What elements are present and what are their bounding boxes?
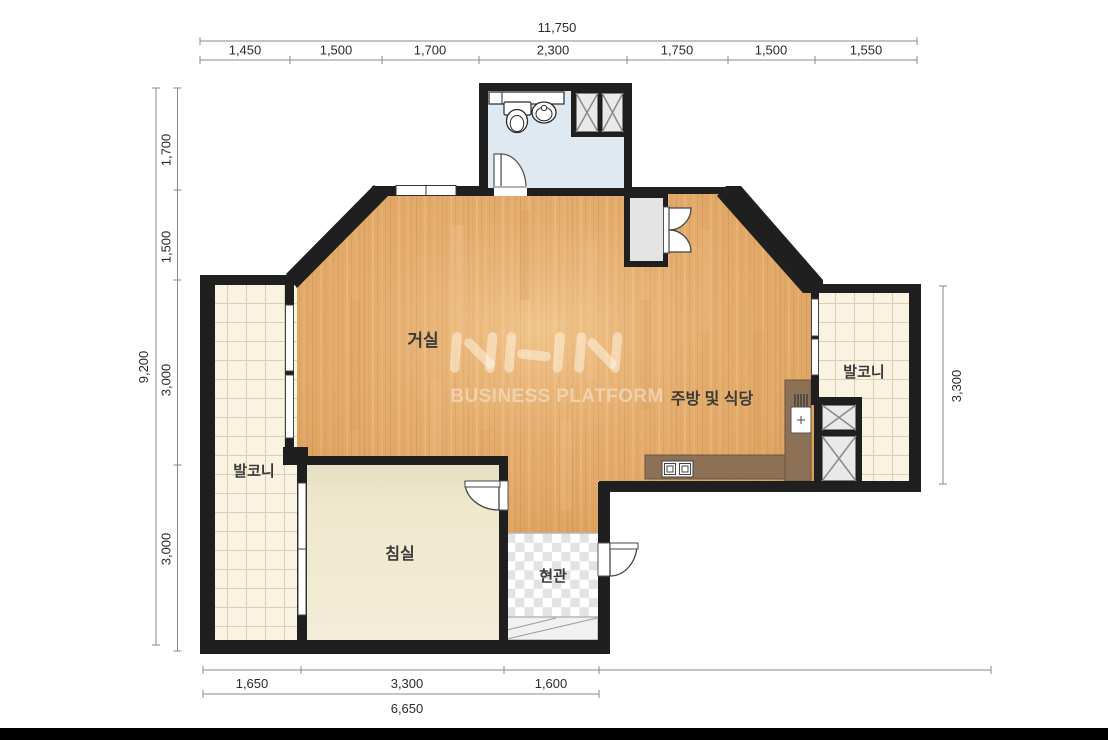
svg-text:3,000: 3,000 [159,533,174,566]
svg-text:1,700: 1,700 [414,43,447,58]
svg-text:3,000: 3,000 [159,364,174,397]
svg-text:1,750: 1,750 [661,43,694,58]
svg-text:9,200: 9,200 [136,351,151,384]
svg-text:1,500: 1,500 [755,43,788,58]
svg-text:발코니: 발코니 [233,463,274,480]
svg-text:거실: 거실 [407,331,438,350]
svg-text:1,550: 1,550 [850,43,883,58]
svg-text:6,650: 6,650 [391,701,424,716]
svg-text:1,500: 1,500 [159,231,174,264]
svg-text:2,300: 2,300 [537,43,570,58]
svg-text:침실: 침실 [385,544,414,563]
svg-text:BUSINESS PLATFORM: BUSINESS PLATFORM [450,386,663,407]
svg-text:1,650: 1,650 [236,676,269,691]
svg-text:1,700: 1,700 [159,134,174,167]
svg-text:1,600: 1,600 [535,676,568,691]
svg-text:주방 및 식당: 주방 및 식당 [671,389,754,408]
svg-text:3,300: 3,300 [949,370,964,403]
svg-text:1,500: 1,500 [320,43,353,58]
svg-text:11,750: 11,750 [538,20,577,35]
svg-text:발코니: 발코니 [843,364,884,381]
svg-text:3,300: 3,300 [391,676,424,691]
svg-text:1,450: 1,450 [229,43,262,58]
svg-text:현관: 현관 [539,568,567,585]
